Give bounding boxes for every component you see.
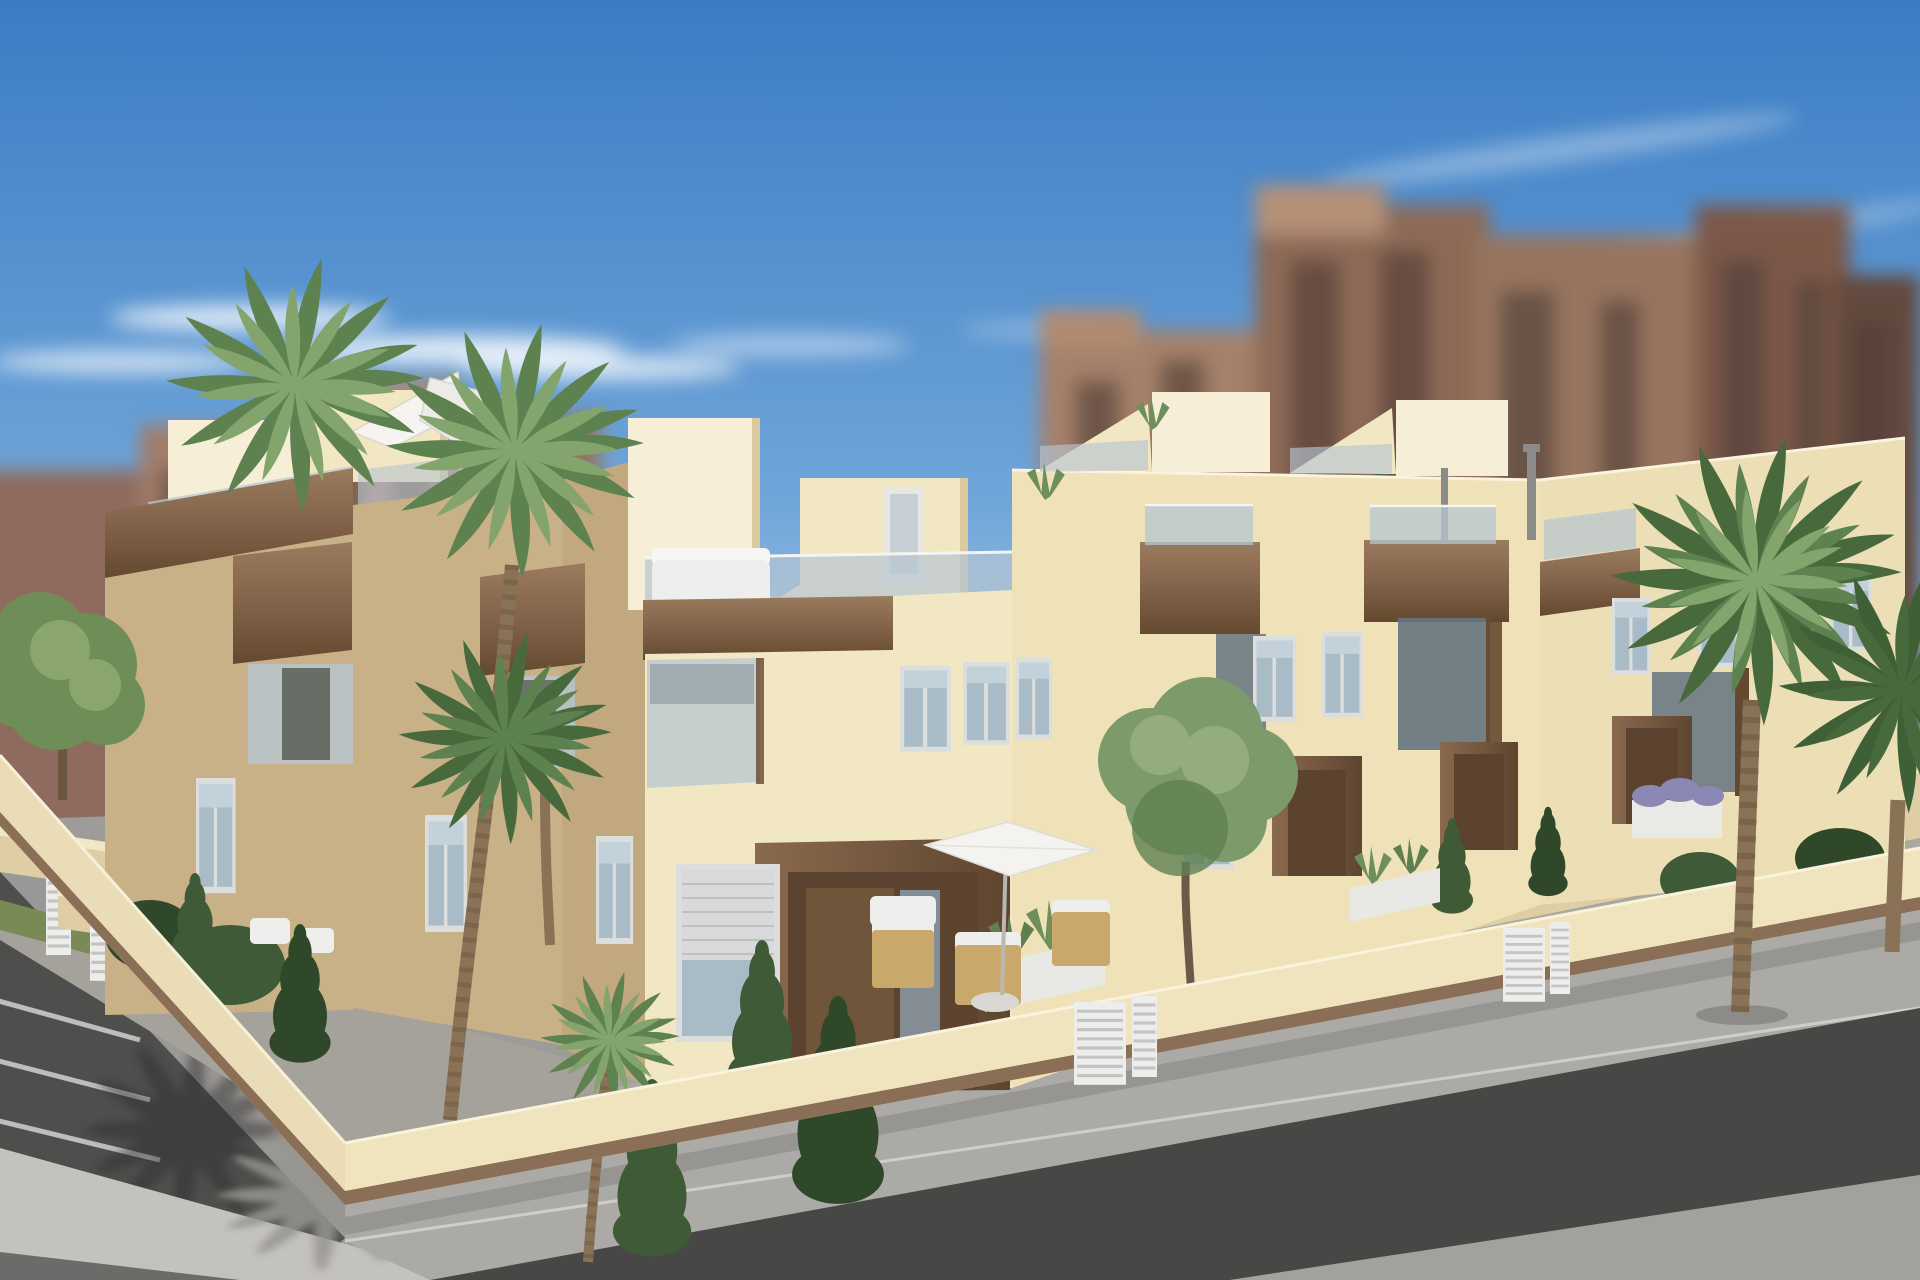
roof-chimney-1 (1527, 450, 1536, 540)
window (196, 778, 236, 893)
patio-table (971, 992, 1019, 1012)
garden-chair-1 (250, 918, 290, 944)
window (1322, 632, 1363, 718)
window (1016, 658, 1052, 739)
wicker-chair-3 (1052, 912, 1110, 966)
scene-render (0, 0, 1920, 1280)
wicker-chair-1 (872, 930, 934, 988)
window (425, 815, 467, 932)
window (596, 836, 633, 944)
wood-balcony-box-2 (1364, 540, 1509, 622)
wood-fascia-central (643, 596, 893, 660)
wood-balcony-header-2 (480, 563, 585, 676)
front-gate-2 (1503, 928, 1545, 1002)
window (963, 662, 1010, 745)
window (900, 666, 951, 752)
hanging-balcony-glass-2 (1398, 618, 1490, 750)
wood-balcony-box-1 (1140, 542, 1260, 634)
front-gate-1 (1074, 1002, 1126, 1085)
wood-balcony-header-1 (233, 542, 352, 664)
render-canvas (0, 0, 1920, 1280)
central-tower (628, 418, 1012, 1092)
front-gate-1b (1132, 996, 1157, 1077)
front-gate-2b (1550, 922, 1570, 994)
window (1253, 636, 1296, 722)
